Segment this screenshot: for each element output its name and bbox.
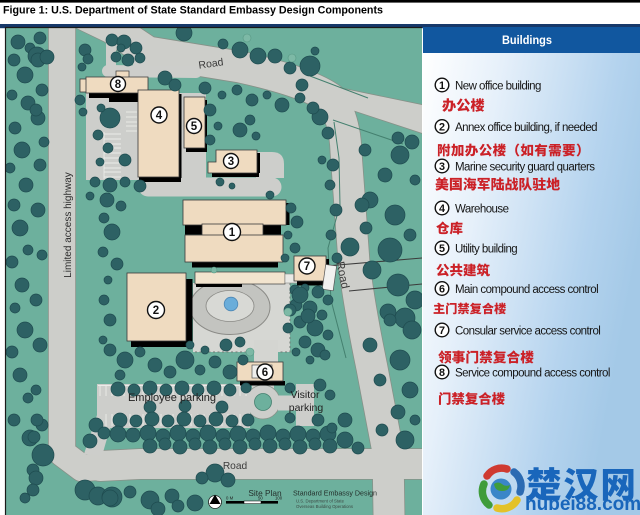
svg-text:1: 1 <box>229 227 236 239</box>
svg-text:1: 1 <box>439 80 445 92</box>
svg-text:7: 7 <box>439 325 445 337</box>
svg-text:0 M: 0 M <box>226 496 234 501</box>
svg-text:50: 50 <box>258 496 263 501</box>
svg-text:8: 8 <box>439 367 445 379</box>
svg-text:Standard Embassy Design: Standard Embassy Design <box>293 489 377 498</box>
svg-text:4: 4 <box>156 110 163 122</box>
svg-text:Visitor: Visitor <box>291 389 320 401</box>
svg-text:3: 3 <box>439 161 445 173</box>
svg-text:Warehouse: Warehouse <box>455 204 509 216</box>
svg-text:Road: Road <box>223 461 248 472</box>
svg-text:Buildings: Buildings <box>502 35 552 47</box>
svg-text:5: 5 <box>439 243 445 255</box>
svg-text:parking: parking <box>289 402 324 414</box>
svg-text:Overseas Building Operations: Overseas Building Operations <box>296 504 353 509</box>
svg-text:Main compound access control: Main compound access control <box>455 284 598 296</box>
svg-text:4: 4 <box>439 203 445 215</box>
svg-text:Marine security guard quarters: Marine security guard quarters <box>455 162 595 174</box>
svg-text:6: 6 <box>439 283 445 295</box>
svg-text:U.S. Department of State: U.S. Department of State <box>296 499 345 504</box>
svg-text:hubei88.com: hubei88.com <box>525 494 640 515</box>
svg-text:Limited access highway: Limited access highway <box>63 172 74 278</box>
svg-text:3: 3 <box>228 156 234 168</box>
svg-text:Figure 1: U.S. Department of S: Figure 1: U.S. Department of State Stand… <box>3 5 383 17</box>
svg-text:2: 2 <box>153 305 159 317</box>
svg-text:100: 100 <box>275 496 283 501</box>
svg-text:6: 6 <box>262 367 268 379</box>
svg-text:Utility building: Utility building <box>455 244 517 256</box>
svg-text:Annex office building, if need: Annex office building, if needed <box>455 122 597 134</box>
svg-text:Employee parking: Employee parking <box>128 392 216 404</box>
svg-text:5: 5 <box>191 121 198 133</box>
svg-text:7: 7 <box>304 261 310 273</box>
svg-text:Consular service access contro: Consular service access control <box>455 326 600 338</box>
svg-text:New office building: New office building <box>455 81 541 93</box>
svg-text:8: 8 <box>115 79 122 91</box>
svg-text:Service compound access contro: Service compound access control <box>455 368 610 380</box>
svg-text:2: 2 <box>439 121 445 133</box>
